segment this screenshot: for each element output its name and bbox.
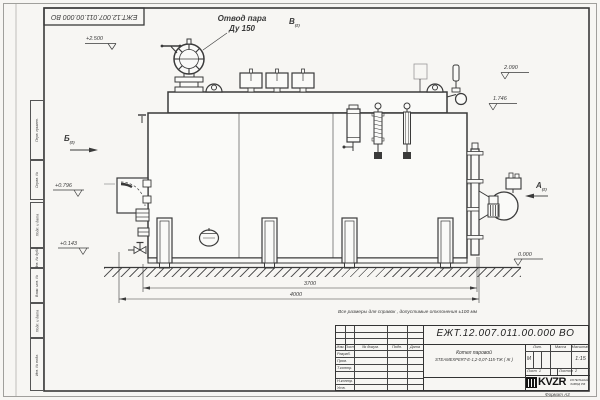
lit-label: Лит. [525,345,550,349]
dimension-4000: 4000 [276,292,316,298]
row-nkontr: Н.контр. [337,379,353,383]
sheet-cell: Лист 1 [527,369,541,373]
row-tkontr: Т.контр. [337,366,352,370]
col-izm: Изм. [336,345,345,349]
margin-stamp-vzam-inv: Взам. инв. № [30,268,44,303]
product-name-line2: STEAMEXPERT-Е-1,2-0,07-115-ТЖ ( Ж ) [425,357,523,362]
inverted-code-text: ЕЖТ.12.007.011.00.000 ВО [51,13,137,20]
document-code: ЕЖТ.12.007.011.00.000 ВО [423,328,588,339]
row-prov: Пров. [337,359,347,363]
kvzr-logo: KVZR КОТЕЛЬНЫЙ ЗАВОД РФ [526,376,589,390]
lit-value: М [525,356,533,362]
elevation-0000: 0.000 [518,252,532,258]
reference-note: Все размеры для справок , допустимые отк… [338,310,477,315]
burner-unit [479,173,521,220]
margin-stamp-inv-podl: Инв. № подл. [30,338,44,391]
col-podp: Подп. [387,345,407,349]
elevation-0143: +0.143 [60,241,77,247]
margin-stamp-inv-dubl: Инв. № дубл. [30,248,44,268]
view-label-b: Б(2) [64,134,75,145]
steam-outlet-line1: Отвод пара [210,14,274,24]
kvzr-logo-coil [528,379,536,387]
title-block: Изм. Лист № докум. Подп. Дата Разраб. Пр… [335,325,589,391]
col-data: Дата [407,345,423,349]
safety-valve-boxes [240,69,314,92]
row-utv: Утв. [337,386,346,390]
view-label-a: А(2) [536,181,547,192]
sheet-number: 1 [539,369,541,373]
sheets-number: 2 [575,369,577,373]
margin-stamp-sprav-no: Справ. № [30,160,44,200]
col-list: Лист [345,345,354,349]
margin-stamp-podp-data-2: Подп. и дата [30,303,44,338]
elevation-2500: +2.500 [86,36,103,42]
format-note: Формат А3 [545,392,570,397]
mass-label: Масса [550,345,571,349]
margin-stamp-perv-primen: Перв. примен. [30,100,44,160]
view-v-subscript: (2) [295,23,300,28]
inverted-code-box: ЕЖТ.12.007.011.00.000 ВО [44,8,144,25]
view-b-subscript: (2) [70,140,75,145]
scale-label: Масштаб [571,345,590,349]
row-razrab: Разраб. [337,352,351,356]
kvzr-logo-sub: КОТЕЛЬНЫЙ ЗАВОД РФ [570,378,589,386]
scale-value: 1:15 [571,356,590,362]
margin-stamp-podp-data-1: Подп. и дата [30,202,44,248]
steam-outlet-line2: Ду 150 [210,24,274,34]
elevation-0796: +0.796 [55,183,72,189]
kvzr-logo-text: KVZR [538,376,566,388]
elevation-2090: 2.090 [504,65,518,71]
view-a-subscript: (2) [542,187,547,192]
product-name-line1: Котел паровой [425,350,523,356]
col-doc: № докум. [354,345,387,349]
steam-outlet-valve [161,33,227,92]
steam-outlet-label: Отвод пара Ду 150 [210,14,274,33]
front-door [117,178,151,213]
blueprint-sheet: { "sheet": { "code_inverted": "ЕЖТ.12.00… [0,0,600,400]
dimension-3700: 3700 [290,281,330,287]
boiler-shell [148,92,467,263]
product-name: Котел паровой STEAMEXPERT-Е-1,2-0,07-115… [425,350,523,362]
elevation-1746: 1.746 [493,96,507,102]
sheets-cell: Листов 2 [559,369,577,373]
view-label-v: В(2) [289,17,300,28]
